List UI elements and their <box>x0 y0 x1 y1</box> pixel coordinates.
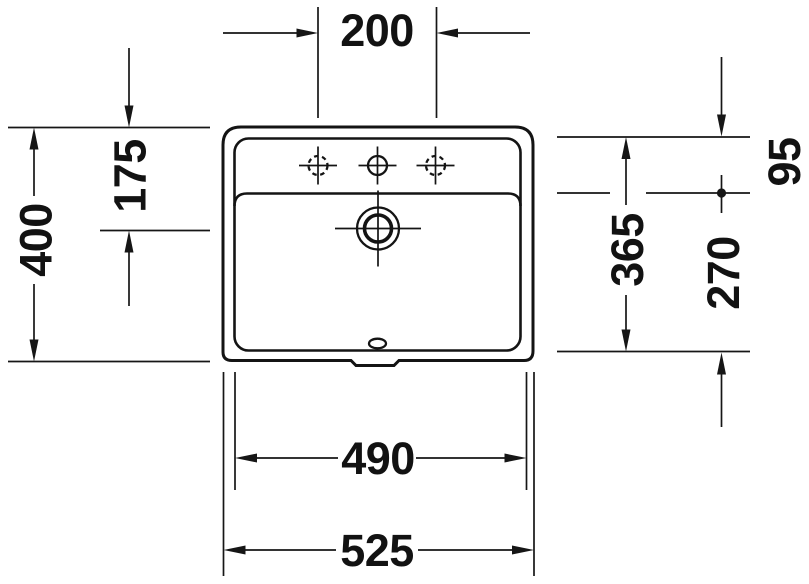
dim-label-175: 175 <box>105 139 156 213</box>
dim-label-400: 400 <box>11 203 62 277</box>
arrowhead-right <box>512 546 534 555</box>
tap-hole-right-dashed <box>417 147 455 185</box>
dimension-back-edge-to-basin-line: 95 <box>557 57 809 213</box>
arrowhead-up <box>125 231 134 253</box>
drain-hole <box>335 191 421 267</box>
dim-label-200: 200 <box>340 5 414 56</box>
dimension-tap-hole-spacing: 200 <box>223 5 530 118</box>
arrowhead-up <box>717 353 726 375</box>
arrowhead-down <box>125 106 134 128</box>
dim-label-490: 490 <box>341 433 415 484</box>
arrowhead-left <box>437 29 459 38</box>
arrowhead-up <box>30 128 39 150</box>
dimension-basin-line-to-front-edge: 270 <box>698 236 749 427</box>
dim-label-525: 525 <box>340 525 414 576</box>
tap-holes <box>299 147 455 185</box>
arrowhead-left <box>224 546 246 555</box>
arrowhead-right <box>297 29 319 38</box>
tap-hole-center <box>359 147 397 185</box>
overflow-slot <box>369 339 386 349</box>
dim-label-270: 270 <box>698 236 749 310</box>
dim-label-95: 95 <box>759 137 809 186</box>
dimension-back-edge-to-drain: 175 <box>100 48 210 306</box>
dimension-basin-width: 490 <box>235 372 527 490</box>
arrowhead-up <box>622 137 631 159</box>
tap-hole-left-dashed <box>299 147 337 185</box>
washbasin-technical-drawing: 200 400 175 365 <box>0 0 809 584</box>
dim-label-365: 365 <box>602 213 653 287</box>
arrowhead-down <box>622 330 631 352</box>
dimension-end-dot <box>717 188 726 197</box>
arrowhead-left <box>235 454 257 463</box>
arrowhead-down <box>717 115 726 137</box>
arrowhead-down <box>30 340 39 362</box>
technical-drawing-page: 200 400 175 365 <box>0 0 809 584</box>
arrowhead-right <box>505 454 527 463</box>
